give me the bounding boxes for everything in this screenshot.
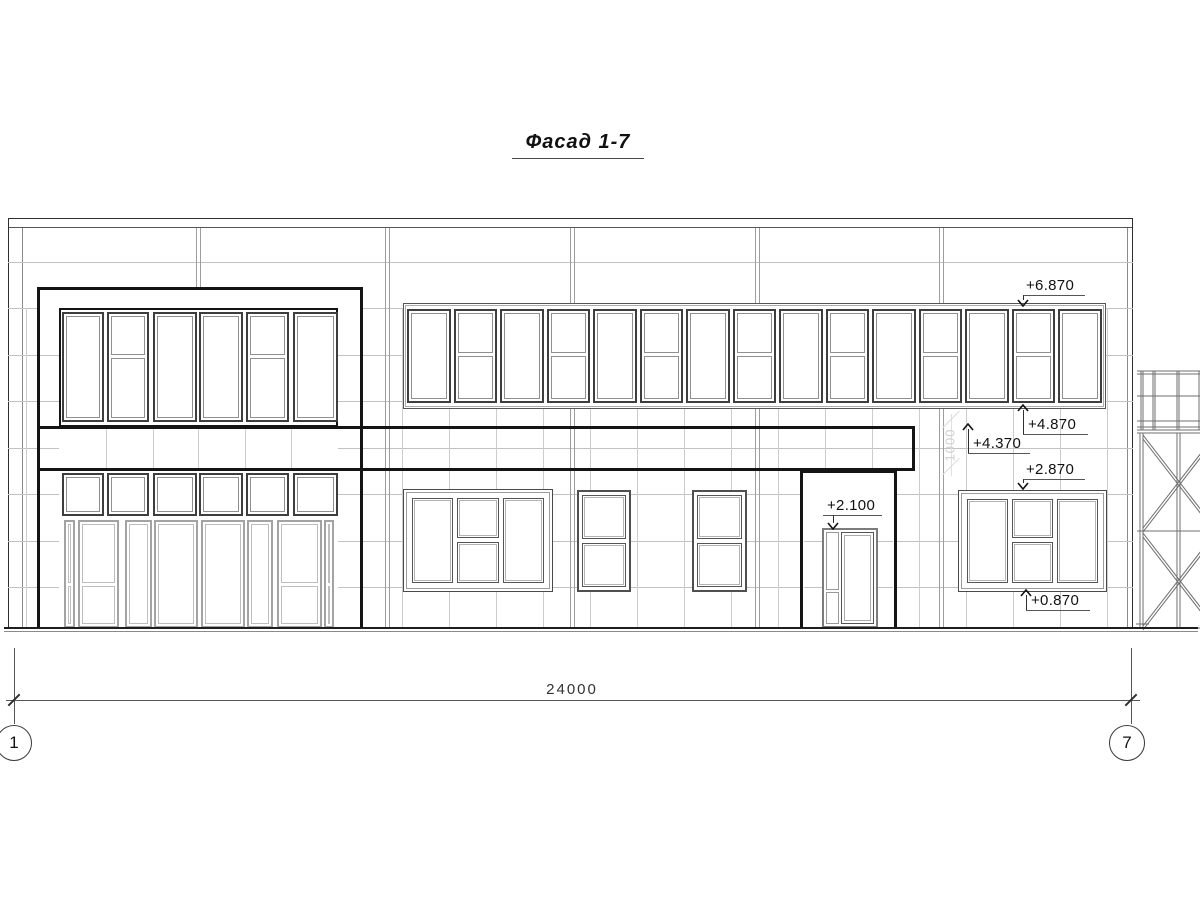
elevation-shelf-line [1023, 479, 1085, 480]
storefront-panel [125, 520, 152, 628]
storefront-panel [64, 520, 75, 628]
axis-bubble-7: 7 [1109, 725, 1145, 761]
window [62, 312, 104, 422]
storefront-panel [78, 520, 119, 628]
window [199, 473, 243, 516]
ribbon-window [919, 309, 963, 403]
elevation-arrowhead-icon [1020, 589, 1032, 597]
window-pane [969, 313, 1005, 399]
ribbon-window [826, 309, 870, 403]
window-pane [250, 477, 285, 512]
elevation-shelf-line [968, 453, 1030, 454]
window-pane [458, 356, 494, 399]
building-left-edge [8, 218, 9, 629]
ribbon-window [547, 309, 591, 403]
building-right-inner-edge [1127, 228, 1128, 628]
ribbon-window [872, 309, 916, 403]
window-triple-right [958, 490, 1107, 592]
elevation-shelf-line [1023, 434, 1088, 435]
window-pane-column [412, 498, 453, 583]
ribbon-window [965, 309, 1009, 403]
window-pane [157, 477, 193, 512]
storefront-pane [281, 524, 318, 583]
window-pane [830, 356, 866, 399]
elevation-value: +4.870 [1028, 416, 1076, 433]
storefront-pane [68, 524, 71, 583]
building-right-edge [1132, 218, 1133, 629]
window-frame-inner [961, 493, 1104, 589]
watermark-dim-text: 1000 [943, 418, 958, 462]
ribbon-windows [407, 309, 1102, 403]
storefront-pane [328, 586, 330, 624]
dimension-line [6, 700, 1140, 701]
door-sidelight [826, 532, 839, 624]
ribbon-window [1012, 309, 1056, 403]
ground-line-secondary [4, 631, 1198, 632]
axis-label-1: 1 [9, 733, 18, 753]
storefront-panel [277, 520, 322, 628]
window-pane [1057, 499, 1098, 583]
window-pane [111, 477, 145, 512]
window-double-2 [692, 490, 747, 592]
storefront-pane [328, 524, 330, 583]
left-block-margin-joint [40, 587, 59, 588]
window-pane [504, 313, 540, 399]
window-pane [66, 316, 100, 418]
window-pane [967, 499, 1008, 583]
window-pane-column [1012, 499, 1053, 583]
elevation-leader-stem [968, 429, 969, 453]
window-pane [582, 495, 626, 539]
window-pane-column [457, 498, 498, 583]
ribbon-window [686, 309, 730, 403]
elevation-arrowhead-icon [1017, 299, 1029, 307]
window-pane [297, 316, 334, 418]
left-block-margin-joint [338, 401, 360, 402]
window-pane [250, 358, 285, 418]
window-pane-column [1057, 499, 1098, 583]
storefront-panel [324, 520, 334, 628]
building-left-inner-edge [22, 228, 23, 628]
page-title: Фасад 1-7 [512, 131, 644, 159]
axis-bubble-1: 1 [0, 725, 32, 761]
ribbon-window [733, 309, 777, 403]
ribbon-window [779, 309, 823, 403]
storefront-pane [82, 524, 115, 583]
window-pane [157, 316, 193, 418]
left-block-margin-joint [40, 541, 59, 542]
elevation-value: +2.870 [1026, 461, 1074, 478]
window-pane [457, 498, 498, 538]
window-pane [503, 498, 544, 583]
ribbon-window [593, 309, 637, 403]
window-double-1 [577, 490, 631, 592]
storefront-pane [158, 524, 194, 624]
facade-drawing-canvas: Фасад 1-7 [0, 0, 1200, 900]
ground-line [4, 627, 1198, 629]
window-pane [1062, 313, 1098, 399]
window-pane [1016, 356, 1052, 399]
entrance-door [822, 528, 878, 628]
storefront-pane [82, 586, 115, 624]
ribbon-window [407, 309, 451, 403]
window-pane [551, 356, 587, 399]
window [199, 312, 243, 422]
window-pane [458, 313, 494, 353]
dim-extension-line-left [14, 648, 15, 724]
ribbon-window [1058, 309, 1102, 403]
window-pane [690, 313, 726, 399]
window-pane [783, 313, 819, 399]
window-frame-inner [406, 492, 550, 589]
left-block-margin-joint [338, 355, 360, 356]
window-pane [203, 316, 239, 418]
window-pane [697, 495, 742, 539]
window [293, 473, 338, 516]
window-pane [697, 543, 742, 587]
elevation-shelf-line [1023, 295, 1085, 296]
elevation-value: +2.100 [827, 497, 875, 514]
left-block-margin-joint [40, 494, 59, 495]
elevation-leader-stem [1026, 595, 1027, 610]
window-pane [457, 542, 498, 583]
elevation-shelf-line [823, 515, 882, 516]
left-block-margin-joint [338, 494, 360, 495]
window-pane-column [503, 498, 544, 583]
dim-extension-line-right [1131, 648, 1132, 724]
window [62, 473, 104, 516]
window-pane [830, 313, 866, 353]
axis-label-7: 7 [1122, 733, 1131, 753]
window-pane [923, 356, 959, 399]
elevation-arrowhead-icon [962, 423, 974, 431]
window [293, 312, 338, 422]
window-pane [923, 313, 959, 353]
left-block-margin-joint [40, 401, 59, 402]
window-pane [203, 477, 239, 512]
elevation-shelf-line [1026, 610, 1090, 611]
window-pane [644, 313, 680, 353]
window-pane [597, 313, 633, 399]
spandrel-band [40, 426, 915, 471]
window-triple-left [403, 489, 553, 592]
storefront-pane [281, 586, 318, 624]
storefront-panel [154, 520, 198, 628]
ribbon-window [640, 309, 684, 403]
wall-joint-vertical [1107, 308, 1108, 628]
storefront-pane [205, 524, 241, 624]
wall-joint-vertical [26, 308, 27, 628]
external-stair-structure [1135, 365, 1200, 635]
window-pane [737, 356, 773, 399]
window [107, 473, 149, 516]
window-pane [111, 316, 145, 355]
window [246, 312, 289, 422]
storefront-pane [68, 586, 71, 624]
window [246, 473, 289, 516]
ribbon-window [454, 309, 498, 403]
window-pane [582, 543, 626, 587]
left-block-margin-joint [338, 587, 360, 588]
door-leaf [841, 532, 874, 624]
window-pane [411, 313, 447, 399]
dimension-total-width: 24000 [512, 681, 632, 698]
storefront-panel [247, 520, 273, 628]
elevation-value: +0.870 [1031, 592, 1079, 609]
storefront-pane [129, 524, 148, 624]
storefront-pane [251, 524, 269, 624]
window [107, 312, 149, 422]
window-pane [297, 477, 334, 512]
elevation-value: +6.870 [1026, 277, 1074, 294]
window-pane [737, 313, 773, 353]
left-block-margin-joint [338, 541, 360, 542]
door-sidelight-pane [826, 532, 839, 590]
elevation-arrowhead-icon [827, 522, 839, 530]
window-pane [111, 358, 145, 418]
window-pane [1012, 499, 1053, 538]
elevation-arrowhead-icon [1017, 404, 1029, 412]
elevation-arrowhead-icon [1017, 482, 1029, 490]
parapet-top-line [8, 218, 1133, 219]
window-pane [1016, 313, 1052, 353]
window-pane [876, 313, 912, 399]
ribbon-window [500, 309, 544, 403]
elevation-value: +4.370 [973, 435, 1021, 452]
window-pane [1012, 542, 1053, 583]
window-pane [250, 316, 285, 355]
door-sidelight-pane [826, 592, 839, 624]
window-pane [66, 477, 100, 512]
window-pane [551, 313, 587, 353]
window [153, 312, 197, 422]
elevation-leader-stem [1023, 410, 1024, 434]
window-pane-column [967, 499, 1008, 583]
left-block-margin-joint [40, 355, 59, 356]
storefront-panel [201, 520, 245, 628]
window [153, 473, 197, 516]
window-pane [412, 498, 453, 583]
window-pane [644, 356, 680, 399]
